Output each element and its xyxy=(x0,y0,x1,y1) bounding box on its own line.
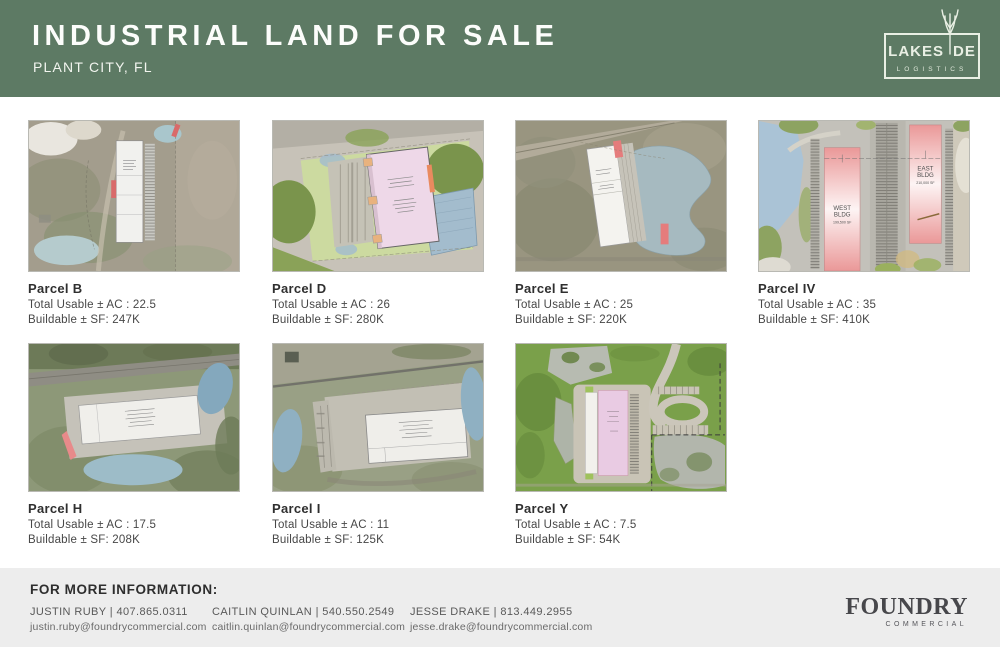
parcel-h-map xyxy=(28,343,240,492)
contact-email: jesse.drake@foundrycommercial.com xyxy=(410,621,592,633)
lakeside-logistics-label: LOGISTICS xyxy=(886,66,978,73)
page-subtitle: PLANT CITY, FL xyxy=(33,59,153,75)
foundry-commercial-logo: FOUNDRY COMMERCIAL xyxy=(845,596,968,628)
parcel-b-map xyxy=(28,120,240,272)
parcel-e-aerial-image xyxy=(516,121,726,271)
contact-email: justin.ruby@foundrycommercial.com xyxy=(30,621,207,633)
parcel-card-iv: WEST BLDG 199,500 SF EAST BLDG 210,000 S… xyxy=(758,120,970,326)
parcel-name: Parcel D xyxy=(272,281,484,296)
lakeside-logistics-logo: LAKESDE LOGISTICS xyxy=(882,8,982,90)
parcel-iv-map: WEST BLDG 199,500 SF EAST BLDG 210,000 S… xyxy=(758,120,970,272)
west-bldg-label-2: BLDG xyxy=(834,212,851,219)
east-bldg-label-2: BLDG xyxy=(917,172,934,179)
parcel-e-map xyxy=(515,120,727,272)
parcel-name: Parcel E xyxy=(515,281,727,296)
lakeside-logo-box: LAKESDE LOGISTICS xyxy=(884,33,980,79)
parcel-sf: Buildable ± SF: 247K xyxy=(28,314,240,326)
contact-email: caitlin.quinlan@foundrycommercial.com xyxy=(212,621,405,633)
header-banner: INDUSTRIAL LAND FOR SALE PLANT CITY, FL … xyxy=(0,0,1000,97)
parcel-acres: Total Usable ± AC : 11 xyxy=(272,519,484,531)
parcel-b-aerial-image xyxy=(29,121,239,271)
parcel-sf: Buildable ± SF: 125K xyxy=(272,534,484,546)
parcel-acres: Total Usable ± AC : 7.5 xyxy=(515,519,727,531)
contact-name-phone: JESSE DRAKE | 813.449.2955 xyxy=(410,606,592,618)
west-bldg-sf-label: 199,500 SF xyxy=(833,221,852,225)
parcel-card-e: Parcel E Total Usable ± AC : 25 Buildabl… xyxy=(515,120,727,326)
parcel-name: Parcel B xyxy=(28,281,240,296)
parcel-iv-siteplan-image: WEST BLDG 199,500 SF EAST BLDG 210,000 S… xyxy=(759,121,969,271)
parcel-d-siteplan-image xyxy=(273,121,483,271)
parcel-y-map xyxy=(515,343,727,492)
flyer-page: INDUSTRIAL LAND FOR SALE PLANT CITY, FL … xyxy=(0,0,1000,647)
parcel-sf: Buildable ± SF: 410K xyxy=(758,314,970,326)
parcel-acres: Total Usable ± AC : 22.5 xyxy=(28,299,240,311)
foundry-wordmark: FOUNDRY xyxy=(845,596,968,618)
parcel-card-i: Parcel I Total Usable ± AC : 11 Buildabl… xyxy=(272,343,484,546)
parcel-name: Parcel I xyxy=(272,501,484,516)
parcel-acres: Total Usable ± AC : 17.5 xyxy=(28,519,240,531)
parcel-d-map xyxy=(272,120,484,272)
parcel-sf: Buildable ± SF: 54K xyxy=(515,534,727,546)
parcel-acres: Total Usable ± AC : 25 xyxy=(515,299,727,311)
parcel-card-b: Parcel B Total Usable ± AC : 22.5 Builda… xyxy=(28,120,240,326)
parcel-name: Parcel IV xyxy=(758,281,970,296)
parcel-name: Parcel Y xyxy=(515,501,727,516)
parcel-i-map xyxy=(272,343,484,492)
parcel-card-y: Parcel Y Total Usable ± AC : 7.5 Buildab… xyxy=(515,343,727,546)
page-title: INDUSTRIAL LAND FOR SALE xyxy=(32,20,558,53)
parcel-card-d: Parcel D Total Usable ± AC : 26 Buildabl… xyxy=(272,120,484,326)
footer-bar: FOR MORE INFORMATION: JUSTIN RUBY | 407.… xyxy=(0,568,1000,647)
contact-caitlin-quinlan: CAITLIN QUINLAN | 540.550.2549 caitlin.q… xyxy=(212,606,405,633)
parcel-acres: Total Usable ± AC : 26 xyxy=(272,299,484,311)
parcel-sf: Buildable ± SF: 280K xyxy=(272,314,484,326)
parcel-acres: Total Usable ± AC : 35 xyxy=(758,299,970,311)
footer-heading: FOR MORE INFORMATION: xyxy=(30,582,218,597)
contact-justin-ruby: JUSTIN RUBY | 407.865.0311 justin.ruby@f… xyxy=(30,606,207,633)
parcel-i-aerial-image xyxy=(273,344,483,491)
lakeside-wordmark: LAKESDE xyxy=(886,43,978,60)
parcel-card-h: Parcel H Total Usable ± AC : 17.5 Builda… xyxy=(28,343,240,546)
parcel-sf: Buildable ± SF: 220K xyxy=(515,314,727,326)
parcel-sf: Buildable ± SF: 208K xyxy=(28,534,240,546)
contact-jesse-drake: JESSE DRAKE | 813.449.2955 jesse.drake@f… xyxy=(410,606,592,633)
contact-name-phone: JUSTIN RUBY | 407.865.0311 xyxy=(30,606,207,618)
contact-name-phone: CAITLIN QUINLAN | 540.550.2549 xyxy=(212,606,405,618)
east-bldg-sf-label: 210,000 SF xyxy=(916,181,935,185)
foundry-commercial-label: COMMERCIAL xyxy=(845,621,968,628)
parcel-y-siteplan-image xyxy=(516,344,726,491)
parcel-name: Parcel H xyxy=(28,501,240,516)
parcel-h-aerial-image xyxy=(29,344,239,491)
